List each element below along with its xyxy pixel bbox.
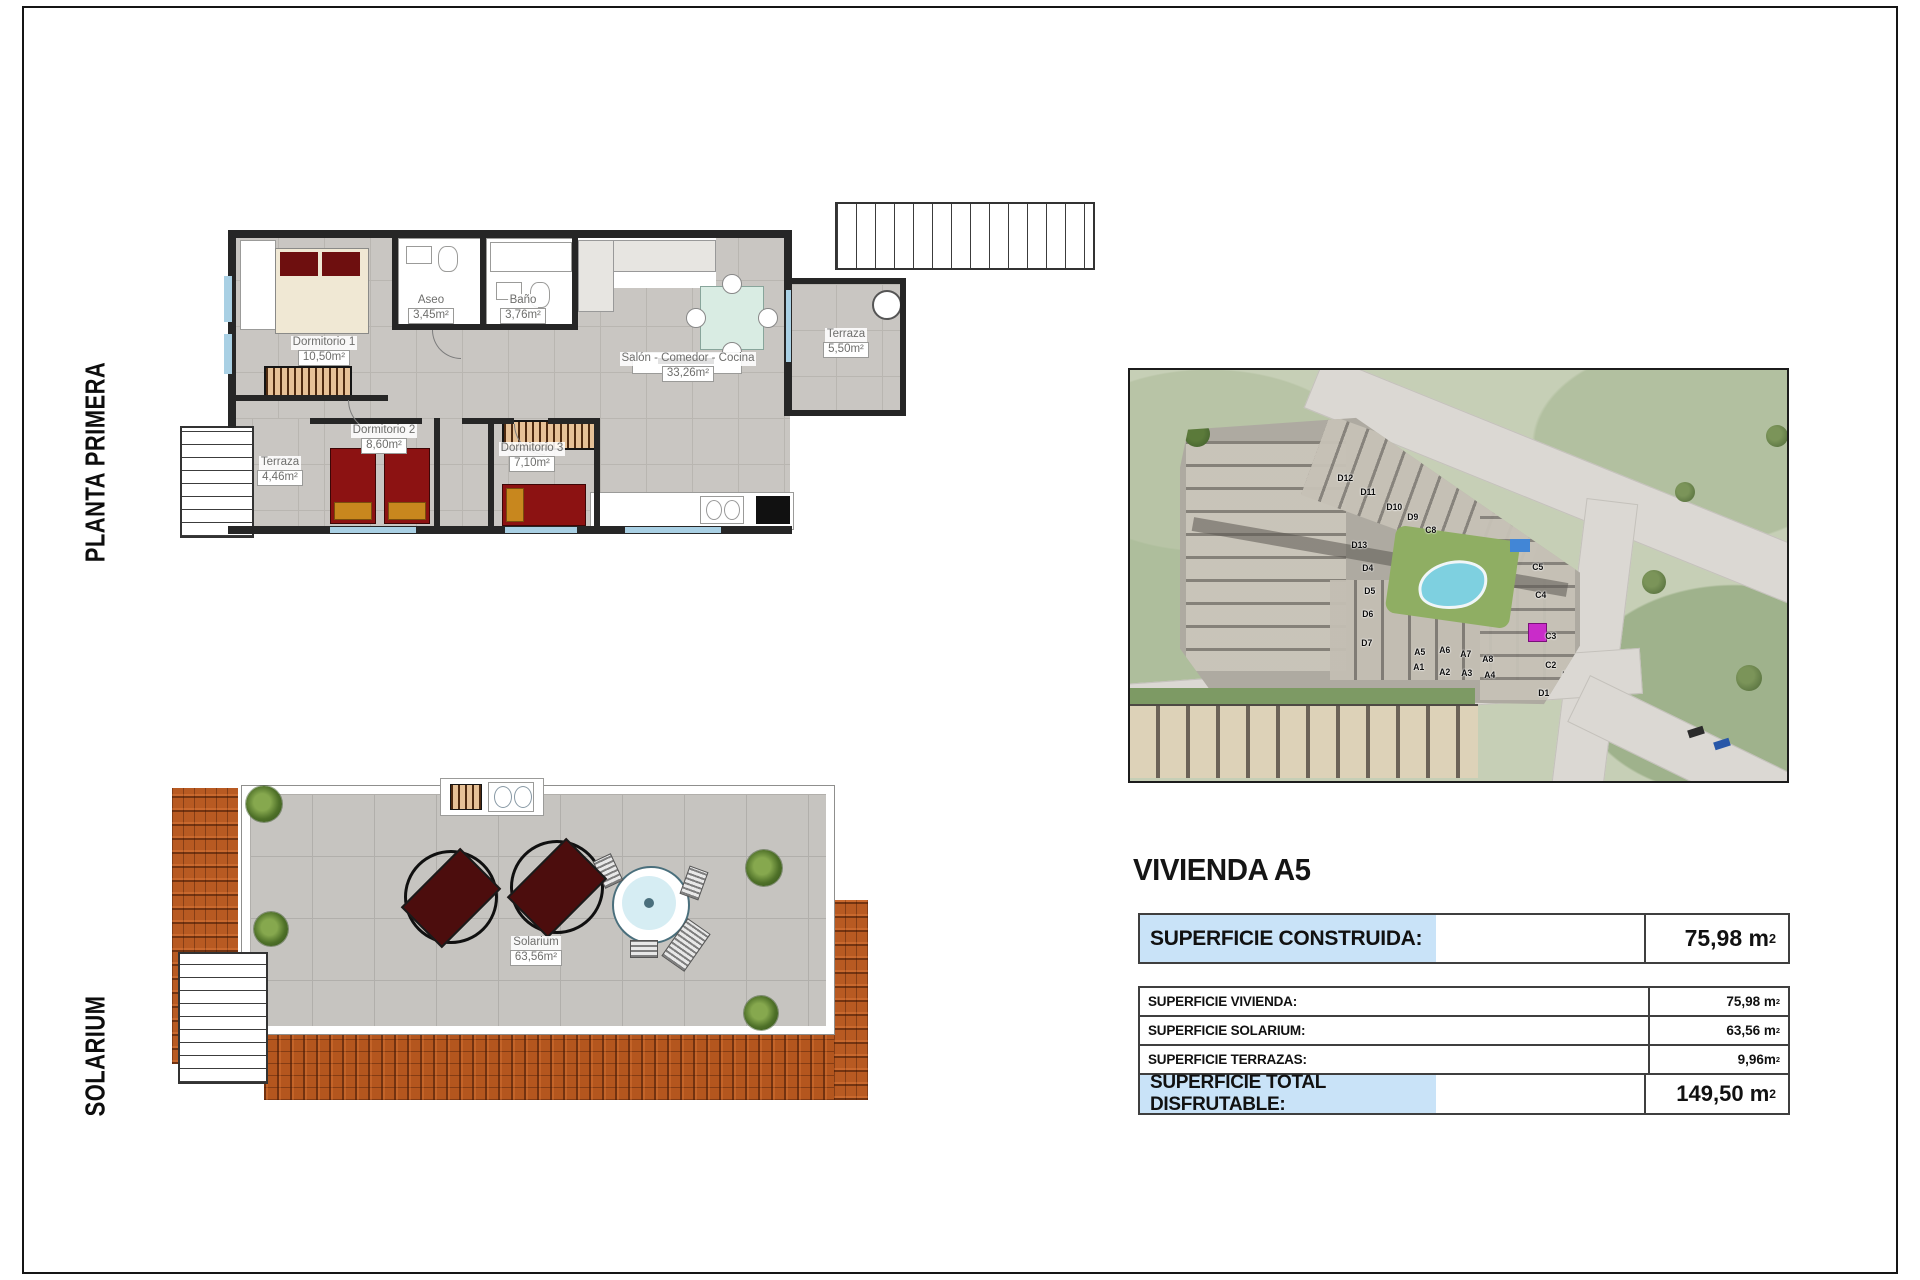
wall (228, 230, 792, 238)
site-unit-label: C2 (1545, 660, 1556, 671)
hedge (1130, 688, 1475, 704)
sink (406, 246, 432, 264)
site-unit-label: D10 (1386, 502, 1402, 513)
highlighted-unit (1528, 623, 1547, 642)
value-sup: 2 (1776, 1026, 1780, 1035)
chair (722, 274, 742, 294)
aerial-site-map: D12 D11 D10 D9 C8 D13 D4 D5 D6 D7 A5 A6 … (1128, 368, 1789, 783)
value-sup: 2 (1776, 997, 1780, 1006)
wall (392, 324, 578, 330)
sink-bowl (724, 500, 740, 520)
site-unit-label: D5 (1364, 586, 1375, 597)
row-value: 63,56 m2 (1648, 1017, 1788, 1044)
value-sup: 2 (1776, 1055, 1780, 1064)
table-row: SUPERFICIE SOLARIUM: 63,56 m2 (1140, 1017, 1788, 1046)
tree (1736, 665, 1762, 691)
table-row: SUPERFICIE TERRAZAS: 9,96m2 (1140, 1046, 1788, 1075)
plant (254, 912, 288, 946)
pillow (388, 502, 426, 520)
row-label: SUPERFICIE TOTAL DISFRUTABLE: (1140, 1075, 1436, 1113)
wall (784, 278, 906, 284)
site-unit-label: D4 (1362, 563, 1373, 574)
wall (548, 418, 598, 424)
closet (240, 240, 276, 330)
site-unit-label: A8 (1482, 654, 1493, 665)
site-unit-label: A2 (1439, 667, 1450, 678)
superficie-construida-row: SUPERFICIE CONSTRUIDA: 75,98 m2 (1138, 913, 1790, 964)
toilet (438, 246, 458, 272)
roof-tiles-bottom (264, 1030, 866, 1100)
value-text: 149,50 m (1676, 1081, 1769, 1107)
terrace-table (872, 290, 902, 320)
wall (392, 238, 398, 330)
row-label: SUPERFICIE VIVIENDA: (1140, 988, 1297, 1015)
roof-tiles-right (834, 900, 868, 1100)
dining-table (700, 286, 764, 350)
access-stairs (835, 202, 1095, 270)
sink-bowl (514, 786, 532, 808)
window (224, 276, 232, 322)
row-value: 75,98 m2 (1648, 988, 1788, 1015)
stairwell (180, 426, 254, 538)
site-unit-label: D7 (1361, 638, 1372, 649)
site-unit-label: A5 (1414, 647, 1425, 658)
site-unit-label: A3 (1461, 668, 1472, 679)
site-unit-label: C3 (1545, 631, 1556, 642)
site-unit-label: C5 (1532, 562, 1543, 573)
floor-section-label: PLANTA PRIMERA (80, 362, 112, 562)
wall (594, 418, 600, 530)
patio-chair (630, 940, 658, 958)
wall (572, 238, 578, 330)
pillow (334, 502, 372, 520)
site-unit-label: D1 (1538, 688, 1549, 699)
wall (784, 410, 906, 416)
plant (246, 786, 282, 822)
room-label-terraza-left: Terraza 4,46m² (248, 456, 312, 486)
room-label-bano: Baño 3,76m² (492, 294, 554, 324)
room-label-dormitorio-2: Dormitorio 2 8,60m² (336, 424, 432, 454)
site-unit-label: A6 (1439, 645, 1450, 656)
total-row: SUPERFICIE TOTAL DISFRUTABLE: 149,50 m2 (1140, 1075, 1788, 1113)
bbq-grill (450, 784, 482, 810)
value-text: 63,56 m (1726, 1023, 1776, 1038)
sofa-chaise (578, 240, 614, 312)
chair (758, 308, 778, 328)
room-label-dormitorio-1: Dormitorio 1 10,50m² (276, 336, 372, 366)
solarium-section-label: SOLARIUM (80, 996, 112, 1117)
table-center (644, 898, 654, 908)
sliding-door (786, 290, 791, 362)
wall (900, 278, 906, 416)
window (330, 527, 416, 533)
row-label: SUPERFICIE CONSTRUIDA: (1140, 915, 1436, 962)
row-value: 149,50 m2 (1644, 1075, 1788, 1113)
construction-row (1130, 704, 1478, 778)
table-row: SUPERFICIE VIVIENDA: 75,98 m2 (1140, 988, 1788, 1017)
row-spacer (1436, 1075, 1644, 1113)
value-sup: 2 (1769, 932, 1776, 946)
site-unit-label: A7 (1460, 649, 1471, 660)
tree (1642, 570, 1666, 594)
palm-tree (1184, 421, 1210, 447)
tree (1766, 425, 1788, 447)
site-unit-label: D6 (1362, 609, 1373, 620)
site-unit-label: D13 (1351, 540, 1367, 551)
value-text: 9,96m (1738, 1052, 1776, 1067)
row-value: 9,96m2 (1648, 1046, 1788, 1073)
solarium-stairs (178, 952, 268, 1084)
row-label: SUPERFICIE TERRAZAS: (1140, 1046, 1307, 1073)
site-unit-label: D9 (1407, 512, 1418, 523)
room-label-salon: Salón - Comedor - Cocina 33,26m² (598, 352, 778, 382)
sink-bowl (706, 500, 722, 520)
window (224, 334, 232, 374)
pillow (506, 488, 524, 522)
private-pool (1510, 539, 1530, 552)
window (625, 527, 721, 533)
wall (480, 238, 486, 330)
unit-title: VIVIENDA A5 (1133, 852, 1311, 888)
site-unit-label: D12 (1337, 473, 1353, 484)
plant (744, 996, 778, 1030)
value-text: 75,98 m (1685, 925, 1769, 952)
tree (1675, 482, 1695, 502)
bathtub (490, 242, 572, 272)
plan-sheet: PLANTA PRIMERA SOLARIUM (0, 0, 1920, 1280)
pillow (280, 252, 318, 276)
value-text: 75,98 m (1726, 994, 1776, 1009)
wall (228, 230, 236, 428)
site-unit-label: A4 (1484, 670, 1495, 681)
site-unit-label: D11 (1360, 487, 1375, 498)
row-label: SUPERFICIE SOLARIUM: (1140, 1017, 1305, 1044)
site-unit-label: C4 (1535, 590, 1546, 601)
room-label-terraza-right: Terraza 5,50m² (814, 328, 878, 358)
plant (746, 850, 782, 886)
surface-table: SUPERFICIE VIVIENDA: 75,98 m2 SUPERFICIE… (1138, 986, 1790, 1115)
value-sup: 2 (1769, 1087, 1776, 1101)
chair (686, 308, 706, 328)
row-value: 75,98 m2 (1644, 915, 1788, 962)
pillow (322, 252, 360, 276)
site-unit-label: A1 (1413, 662, 1424, 673)
wall (488, 424, 494, 530)
row-spacer (1436, 915, 1644, 962)
room-label-dormitorio-3: Dormitorio 3 7,10m² (484, 442, 580, 472)
room-label-aseo: Aseo 3,45m² (400, 294, 462, 324)
wall (434, 418, 440, 530)
cooktop (756, 496, 790, 524)
room-label-solarium: Solarium 63,56m² (498, 936, 574, 966)
window (505, 527, 577, 533)
sink-bowl (494, 786, 512, 808)
solarium-plan: Solarium 63,56m² (172, 772, 872, 1106)
site-unit-label: C8 (1425, 525, 1436, 536)
floor-plan-planta-primera: Dormitorio 1 10,50m² Aseo 3,45m² Baño 3,… (180, 190, 1115, 550)
